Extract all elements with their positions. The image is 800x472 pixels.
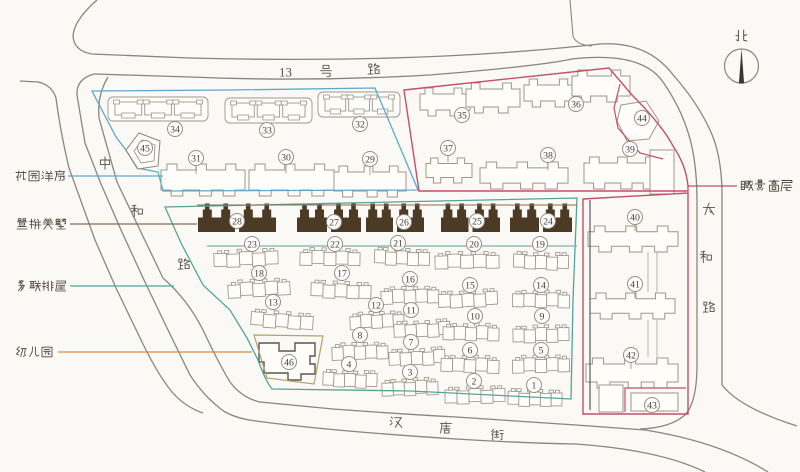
svg-text:40: 40 xyxy=(630,213,640,224)
svg-text:45: 45 xyxy=(140,144,150,155)
svg-text:29: 29 xyxy=(365,155,375,166)
svg-text:41: 41 xyxy=(630,280,640,291)
svg-text:7: 7 xyxy=(409,338,414,349)
svg-text:3: 3 xyxy=(408,368,413,379)
svg-text:33: 33 xyxy=(262,126,272,137)
svg-text:32: 32 xyxy=(355,120,365,131)
svg-text:10: 10 xyxy=(470,312,480,323)
svg-text:43: 43 xyxy=(647,401,657,412)
svg-text:11: 11 xyxy=(406,306,416,317)
svg-text:26: 26 xyxy=(399,218,409,229)
svg-text:4: 4 xyxy=(347,360,352,371)
svg-text:5: 5 xyxy=(539,346,544,357)
svg-text:15: 15 xyxy=(465,281,475,292)
svg-text:9: 9 xyxy=(540,312,545,323)
svg-text:36: 36 xyxy=(571,100,581,111)
svg-text:1: 1 xyxy=(532,381,537,392)
svg-text:42: 42 xyxy=(626,351,636,362)
svg-text:13: 13 xyxy=(268,298,278,309)
svg-text:35: 35 xyxy=(457,111,467,122)
svg-text:37: 37 xyxy=(443,144,453,155)
svg-text:27: 27 xyxy=(329,218,339,229)
svg-text:13: 13 xyxy=(279,65,292,80)
svg-text:2: 2 xyxy=(472,377,477,388)
svg-text:34: 34 xyxy=(170,125,180,136)
svg-text:23: 23 xyxy=(247,240,257,251)
svg-text:16: 16 xyxy=(405,275,415,286)
svg-text:22: 22 xyxy=(330,240,340,251)
svg-text:31: 31 xyxy=(191,154,201,165)
svg-text:12: 12 xyxy=(371,301,381,312)
svg-text:17: 17 xyxy=(337,269,347,280)
svg-text:28: 28 xyxy=(232,217,242,228)
svg-text:39: 39 xyxy=(625,145,635,156)
svg-text:30: 30 xyxy=(281,153,291,164)
svg-text:20: 20 xyxy=(469,240,479,251)
svg-text:6: 6 xyxy=(468,346,473,357)
svg-text:25: 25 xyxy=(472,217,482,228)
svg-text:44: 44 xyxy=(637,114,647,125)
svg-text:38: 38 xyxy=(543,151,553,162)
svg-text:18: 18 xyxy=(254,269,264,280)
svg-text:14: 14 xyxy=(536,281,546,292)
svg-text:19: 19 xyxy=(535,240,545,251)
svg-text:8: 8 xyxy=(358,331,363,342)
svg-text:24: 24 xyxy=(543,217,553,228)
svg-text:21: 21 xyxy=(393,239,403,250)
svg-text:46: 46 xyxy=(284,358,294,369)
